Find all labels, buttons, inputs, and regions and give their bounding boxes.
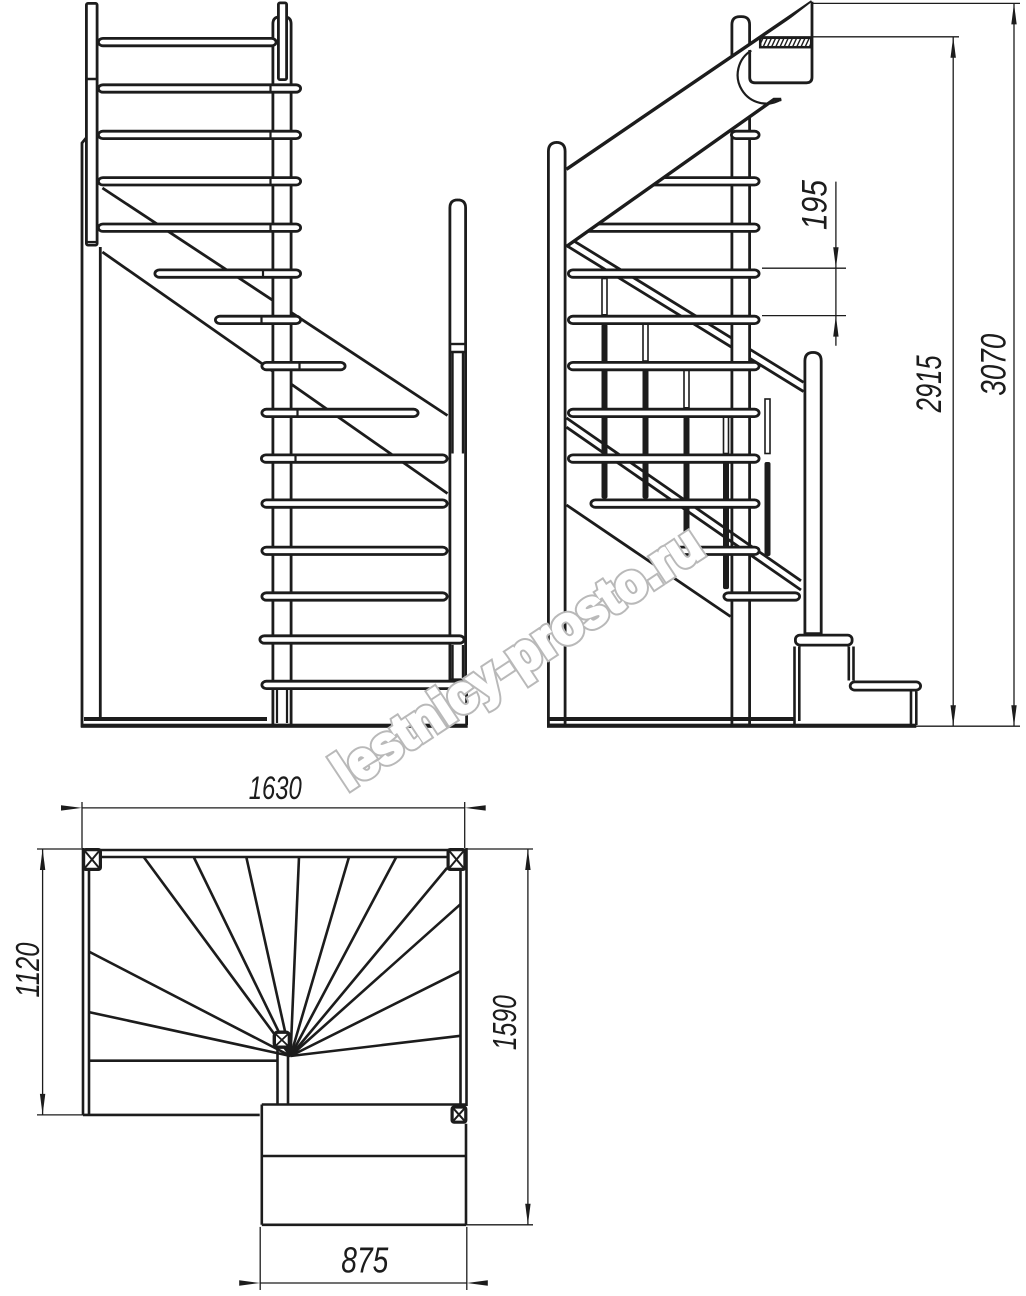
svg-text:1120: 1120 bbox=[9, 942, 46, 997]
svg-text:1630: 1630 bbox=[249, 770, 302, 806]
svg-text:1590: 1590 bbox=[486, 995, 523, 1050]
svg-text:875: 875 bbox=[341, 1239, 389, 1280]
svg-text:195: 195 bbox=[795, 180, 834, 230]
svg-text:3070: 3070 bbox=[974, 333, 1013, 395]
svg-text:2915: 2915 bbox=[910, 355, 949, 413]
